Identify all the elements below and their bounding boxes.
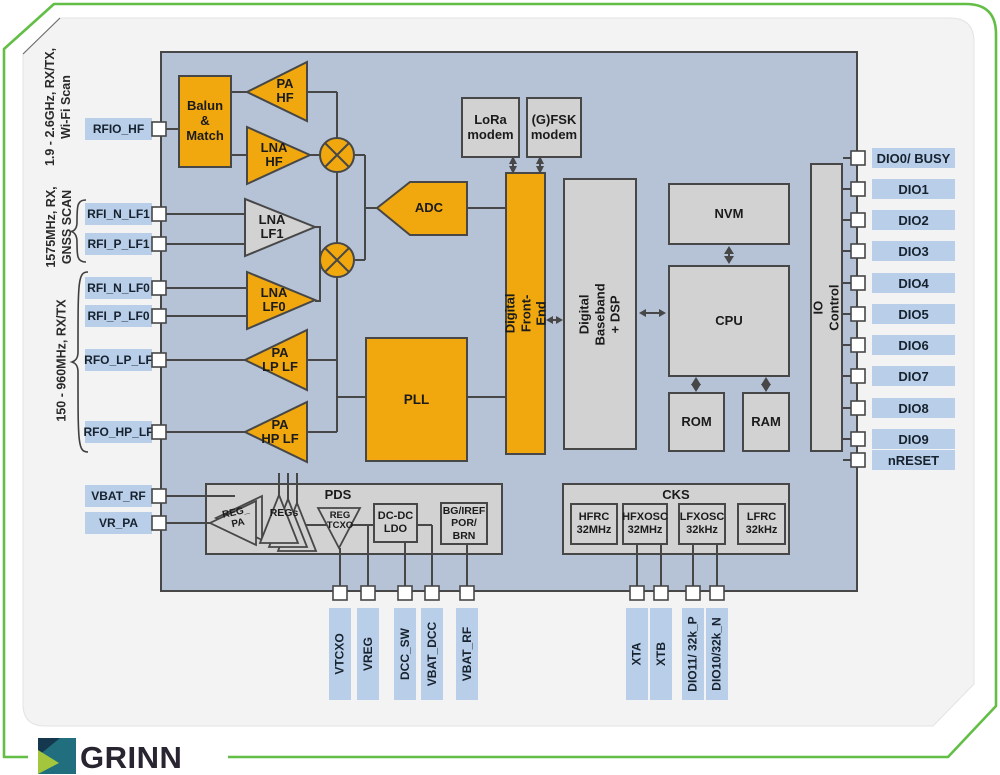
lna-lf1-label: LNA LF1 [249,207,295,247]
regs-label: REGs [262,506,306,522]
pa-lp-lf-label: PA LP LF [253,339,307,381]
brand-wordmark: GRINN [80,740,182,775]
lna-lf0-label: LNA LF0 [251,280,297,320]
reg-tcxo-label: REG TCXO [319,508,361,534]
group-braces [71,200,88,452]
page: Balun & Match LoRa modem (G)FSK modem Di… [0,0,1000,775]
pa-hf-label: PA HF [262,71,308,111]
adc-label: ADC [398,195,460,221]
lna-hf-label: LNA HF [251,135,297,175]
wires-layer [0,0,1000,775]
arrow-heads [509,156,771,392]
amplifier-triangles [245,62,315,462]
pa-hp-lf-label: PA HP LF [253,411,307,453]
